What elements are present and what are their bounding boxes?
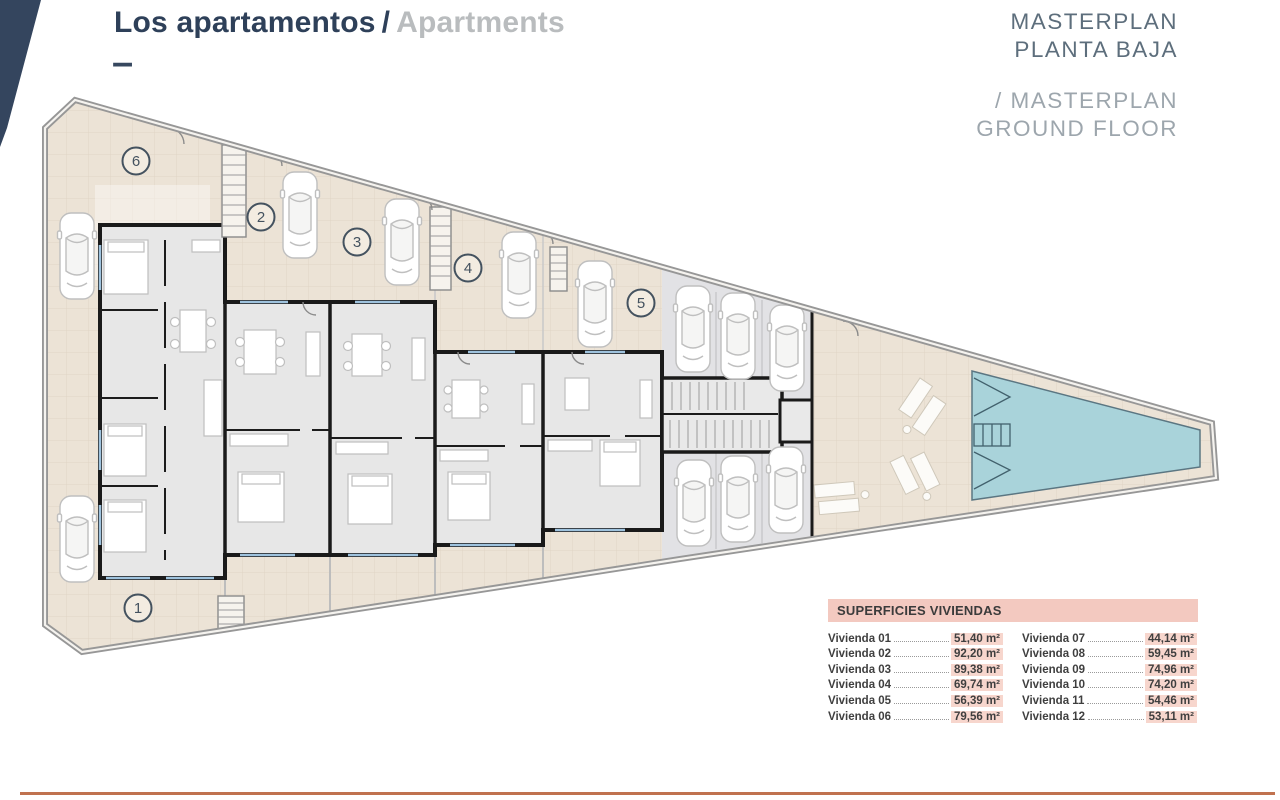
table-row: Vivienda 1154,46 m² (1022, 691, 1197, 707)
table-row: Vivienda 0469,74 m² (828, 676, 1003, 692)
car-icon (281, 172, 320, 258)
table-row: Vivienda 1253,11 m² (1022, 707, 1197, 723)
svg-text:2: 2 (257, 209, 265, 226)
unit-marker-3: 3 (344, 229, 371, 256)
areas-table-column-1: Vivienda 0151,40 m² Vivienda 0292,20 m² … (828, 629, 1003, 723)
areas-table-column-2: Vivienda 0744,14 m² Vivienda 0859,45 m² … (1022, 629, 1197, 723)
car-icon (500, 232, 539, 318)
car-icon (675, 460, 714, 546)
car-icon (58, 496, 97, 582)
table-row: Vivienda 0679,56 m² (828, 707, 1003, 723)
car-icon (58, 213, 97, 299)
svg-text:3: 3 (353, 234, 361, 251)
car-icon (383, 199, 422, 285)
table-row: Vivienda 0744,14 m² (1022, 629, 1197, 645)
car-icon (719, 456, 758, 542)
areas-table-title: SUPERFICIES VIVIENDAS (828, 599, 1198, 622)
table-row: Vivienda 0389,38 m² (828, 660, 1003, 676)
table-row: Vivienda 0859,45 m² (1022, 645, 1197, 661)
unit-marker-6: 6 (123, 148, 150, 175)
areas-table: SUPERFICIES VIVIENDAS Vivienda 0151,40 m… (828, 599, 1198, 723)
table-row: Vivienda 0974,96 m² (1022, 660, 1197, 676)
table-row: Vivienda 0151,40 m² (828, 629, 1003, 645)
svg-text:4: 4 (464, 260, 472, 277)
unit-marker-4: 4 (455, 255, 482, 282)
table-row: Vivienda 1074,20 m² (1022, 676, 1197, 692)
svg-text:1: 1 (134, 600, 142, 617)
svg-text:5: 5 (637, 295, 645, 312)
car-icon (767, 447, 806, 533)
car-icon (719, 293, 758, 379)
car-icon (674, 286, 713, 372)
unit-marker-1: 1 (125, 595, 152, 622)
svg-text:6: 6 (132, 153, 140, 170)
car-icon (576, 261, 615, 347)
unit-marker-5: 5 (628, 290, 655, 317)
footer-rule (20, 792, 1275, 795)
unit-marker-2: 2 (248, 204, 275, 231)
table-row: Vivienda 0292,20 m² (828, 645, 1003, 661)
table-row: Vivienda 0556,39 m² (828, 691, 1003, 707)
car-icon (768, 305, 807, 391)
